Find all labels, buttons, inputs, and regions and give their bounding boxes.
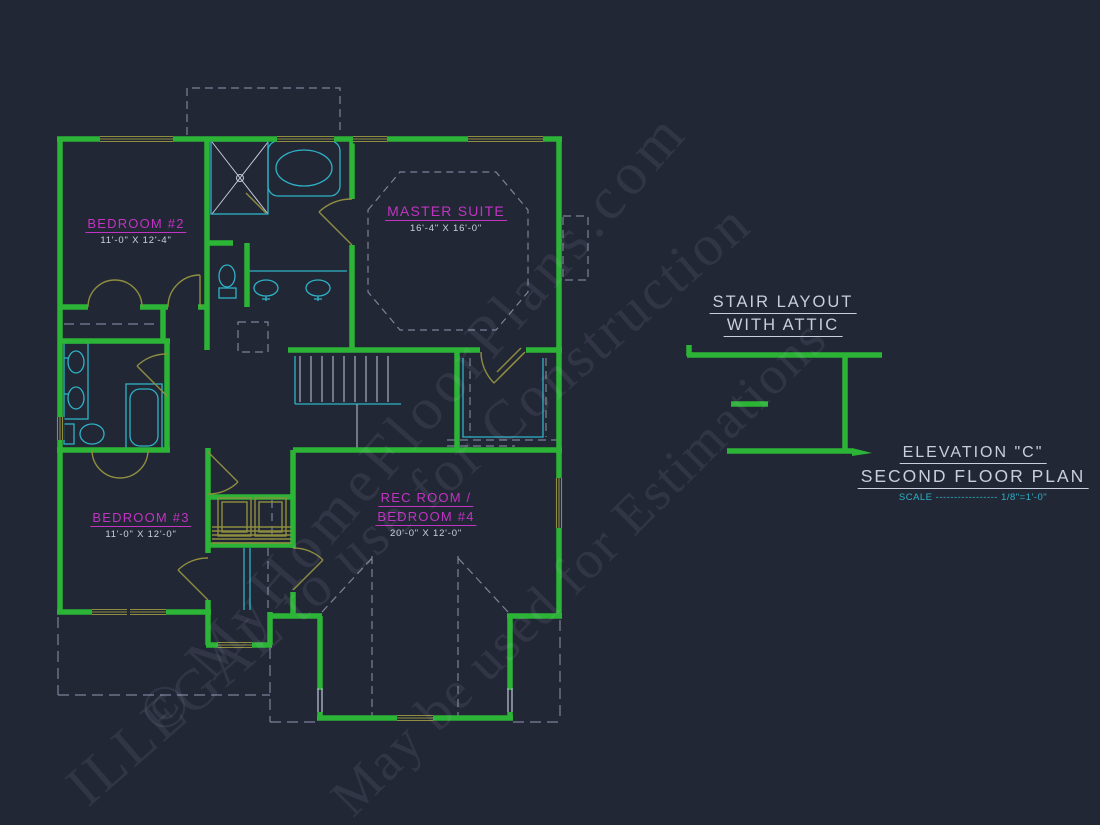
- scale-note: SCALE ----------------- 1/8"=1'-0": [858, 492, 1089, 503]
- elevation-title: ELEVATION "C": [900, 444, 1047, 464]
- scale-value: 1/8"=1'-0": [1001, 492, 1047, 503]
- bedroom2-name: BEDROOM #2: [85, 216, 186, 233]
- room-label-rec-room: REC ROOM / BEDROOM #4 20'-0" X 12'-0": [375, 489, 476, 539]
- stair-layout-title-line2: WITH ATTIC: [724, 316, 842, 337]
- stair-section-diagram: [687, 345, 882, 456]
- stair-layout-title: STAIR LAYOUT WITH ATTIC: [710, 293, 857, 337]
- bedroom3-name: BEDROOM #3: [90, 510, 191, 527]
- stair-layout-title-line1: STAIR LAYOUT: [710, 293, 857, 314]
- master-suite-name: MASTER SUITE: [385, 203, 507, 221]
- room-label-master-suite: MASTER SUITE 16'-4" X 16'-0": [385, 203, 507, 234]
- room-label-bedroom2: BEDROOM #2 11'-0" X 12'-4": [85, 215, 186, 246]
- rec-room-dims: 20'-0" X 12'-0": [375, 528, 476, 539]
- floor-plan-drawing: [0, 0, 1100, 825]
- rec-room-name-line2: BEDROOM #4: [375, 509, 476, 526]
- stair-treads: [212, 142, 388, 448]
- bedroom2-dims: 11'-0" X 12'-4": [85, 235, 186, 246]
- master-suite-dims: 16'-4" X 16'-0": [385, 223, 507, 234]
- bedroom3-dims: 11'-0" X 12'-0": [90, 529, 191, 540]
- plan-name-title: SECOND FLOOR PLAN: [858, 466, 1089, 489]
- scale-label: SCALE: [899, 492, 933, 503]
- scale-dashes: -----------------: [936, 492, 998, 503]
- rec-room-name-line1: REC ROOM /: [379, 490, 474, 507]
- room-label-bedroom3: BEDROOM #3 11'-0" X 12'-0": [90, 509, 191, 540]
- blueprint-page: BEDROOM #2 11'-0" X 12'-4" MASTER SUITE …: [0, 0, 1100, 825]
- title-block: ELEVATION "C" SECOND FLOOR PLAN SCALE --…: [858, 444, 1089, 503]
